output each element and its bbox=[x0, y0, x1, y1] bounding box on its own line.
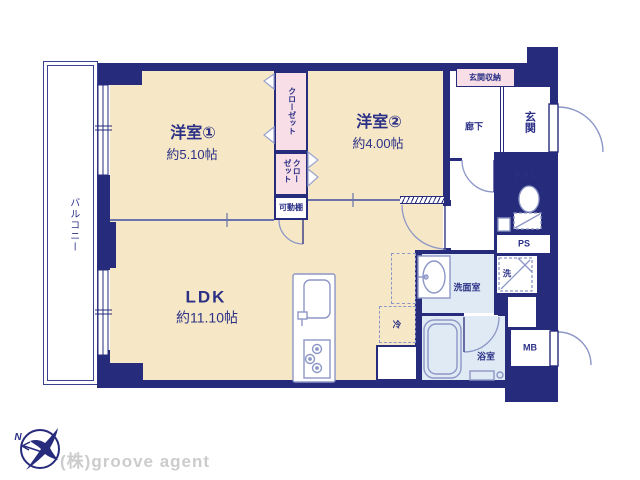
entrance-storage-label: 玄関収納 bbox=[469, 73, 501, 83]
ldk-size: 約11.10帖 bbox=[176, 309, 238, 327]
entrance-label: 玄関 bbox=[523, 111, 536, 133]
hallway-label: 廊下 bbox=[465, 121, 483, 132]
toilet-fixture bbox=[498, 186, 541, 231]
floorplan-graphics bbox=[0, 0, 640, 480]
entrance-door bbox=[549, 104, 603, 152]
meter-box-label: MB bbox=[523, 342, 537, 353]
company-logo-text: (株)groove agent bbox=[60, 447, 210, 472]
closet-lower-bifold-icon bbox=[308, 152, 318, 186]
fridge-label: 冷 bbox=[393, 320, 402, 331]
toilet-label: トイレ bbox=[513, 171, 539, 182]
compass-north-label: N bbox=[14, 432, 21, 445]
balcony-label: バルコニー bbox=[67, 198, 79, 253]
closet-upper-label: クローゼット bbox=[287, 87, 296, 135]
bath-drain-icon bbox=[497, 372, 503, 378]
closet-upper-bifold-icon bbox=[264, 74, 274, 143]
closet-lower-label: クローゼット bbox=[283, 159, 301, 189]
room2-name: 洋室② bbox=[356, 113, 402, 133]
kitchen-faucet bbox=[298, 312, 307, 319]
meter-box-door bbox=[550, 331, 591, 366]
room1-size: 約5.10帖 bbox=[166, 147, 217, 163]
kitchen-sink bbox=[304, 280, 330, 318]
entrance-door-leaf bbox=[549, 104, 558, 152]
window-room1 bbox=[95, 85, 112, 175]
floor-plan: バルコニー 洋室① 約5.10帖 洋室② 約4.00帖 LDK 約11.10帖 … bbox=[0, 0, 640, 480]
room2-size: 約4.00帖 bbox=[352, 136, 403, 152]
washroom-label: 洗面室 bbox=[453, 282, 480, 293]
movable-shelf-door bbox=[279, 220, 303, 244]
hallway-door bbox=[462, 160, 494, 192]
bath-counter bbox=[470, 371, 494, 380]
washer-label: 洗 bbox=[503, 269, 512, 280]
compass-logo bbox=[21, 428, 59, 470]
pipe-space-label: PS bbox=[518, 238, 530, 249]
washroom-sink bbox=[418, 256, 450, 298]
ldk-name: LDK bbox=[186, 286, 227, 307]
window-ldk bbox=[95, 270, 112, 355]
bathroom-door bbox=[464, 317, 499, 352]
bathroom-label: 浴室 bbox=[477, 351, 495, 362]
room1-name: 洋室① bbox=[170, 124, 216, 144]
ldk-door bbox=[402, 205, 446, 249]
kitchen-counter bbox=[293, 274, 335, 382]
movable-shelf-label: 可動棚 bbox=[279, 203, 303, 213]
meter-box-door-leaf bbox=[550, 331, 558, 366]
